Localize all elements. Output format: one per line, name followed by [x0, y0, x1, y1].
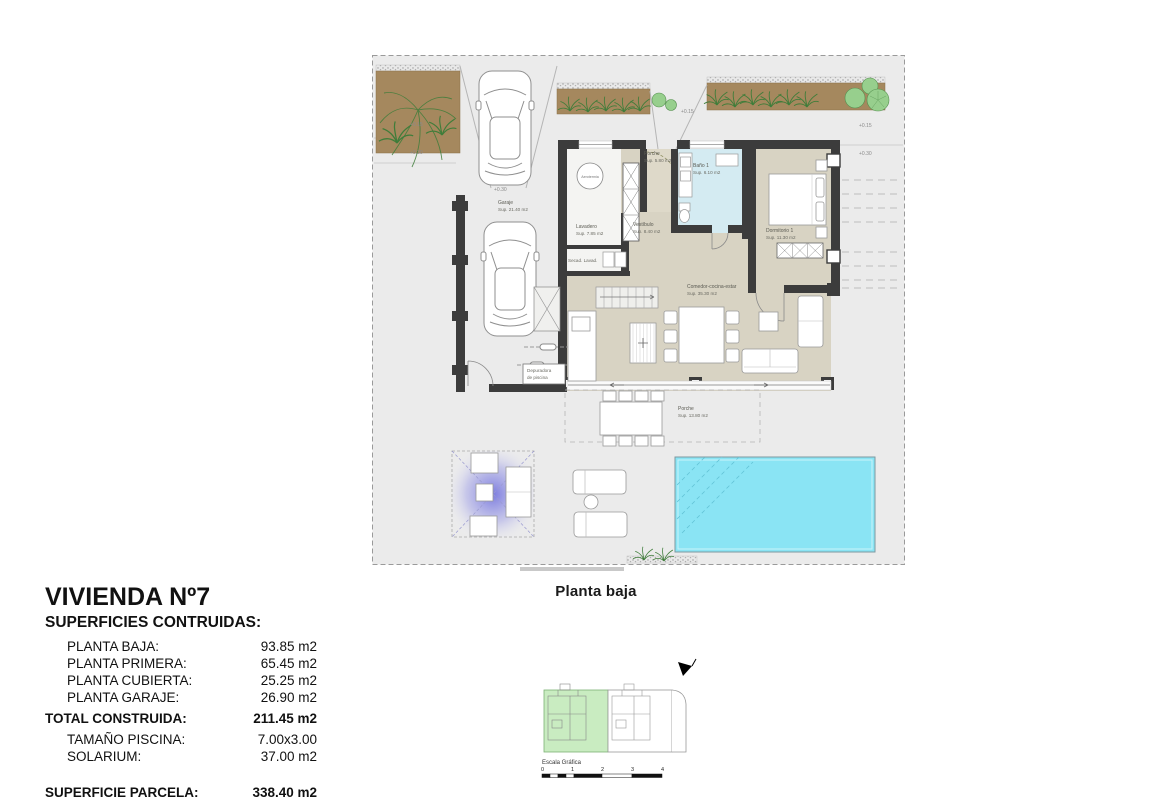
room-comedor-name: Comedor-cocina-estar: [687, 284, 737, 290]
scale-tick-0: 0: [541, 767, 544, 773]
pool-pump-label-2: de piscina: [527, 375, 548, 380]
plan-caption: Planta baja: [300, 583, 892, 600]
surface-row: TAMAÑO PISCINA: 7.00x3.00: [45, 731, 317, 748]
aerotermia-label: Aerotermia: [581, 175, 599, 179]
level-right-upper: +0.15: [859, 123, 872, 129]
surfaces-subtitle: SUPERFICIES CONTRUIDAS:: [45, 614, 317, 631]
surface-value: 37.00 m2: [261, 748, 317, 765]
scale-tick-1: 1: [571, 767, 574, 773]
surface-row: PLANTA CUBIERTA: 25.25 m2: [45, 672, 317, 689]
surface-label: SUPERFICIE PARCELA:: [45, 784, 199, 801]
outdoor-dining: [600, 391, 664, 446]
aerotermia-unit: Aerotermia: [577, 163, 603, 189]
pool-pump-label-1: Depuradora: [527, 368, 552, 373]
glass-wall: [567, 381, 831, 390]
surface-row: PLANTA BAJA: 93.85 m2: [45, 638, 317, 655]
stairs-garage: [534, 287, 560, 331]
room-lavadero-name: Lavadero: [576, 224, 597, 230]
surface-value: 93.85 m2: [261, 638, 317, 655]
site-plots: [544, 690, 686, 752]
room-porche-entrada-name: Porche: [644, 151, 660, 157]
surface-value: 25.25 m2: [261, 672, 317, 689]
surface-label: PLANTA GARAJE:: [67, 689, 179, 706]
room-porche-terraza-name: Porche: [678, 406, 694, 412]
room-dormitorio1-area: Sup. 11.30 m2: [766, 235, 796, 240]
surface-label: PLANTA CUBIERTA:: [67, 672, 192, 689]
level-right-lower: +0.30: [859, 151, 872, 157]
room-vestibulo-name: Vestíbulo: [633, 222, 654, 228]
room-porche-entrada-area: Sup. 5.80 m2: [644, 158, 672, 163]
surface-value: 211.45 m2: [253, 710, 317, 727]
surface-label: TAMAÑO PISCINA:: [67, 731, 185, 748]
north-arrow-icon: [678, 659, 696, 676]
stairs-main: [596, 287, 658, 308]
site-key-plan: Escala Gráfica 0 1 2 3 4: [536, 656, 706, 780]
surface-label: SOLARIUM:: [67, 748, 141, 765]
room-bano1-name: Baño 1: [693, 163, 709, 169]
swimming-pool: [675, 457, 875, 552]
surface-value: 65.45 m2: [261, 655, 317, 672]
scale-tick-4: 4: [661, 767, 664, 773]
room-vestibulo-area: Sup. 8.40 m2: [633, 229, 661, 234]
surface-label: PLANTA PRIMERA:: [67, 655, 187, 672]
room-bano1-area: Sup. 6.10 m2: [693, 170, 721, 175]
drawing-sheet: Depuradora de piscina: [0, 0, 1170, 785]
surface-row: SOLARIUM: 37.00 m2: [45, 748, 317, 765]
title-block: VIVIENDA Nº7 SUPERFICIES CONTRUIDAS: PLA…: [45, 584, 317, 801]
level-garage: +0.30: [494, 187, 507, 193]
room-garaje-name: Garaje: [498, 200, 513, 206]
scale-label: Escala Gráfica: [542, 760, 582, 766]
pergola-lounge: [452, 451, 534, 537]
level-left-lower: +0.30: [410, 150, 423, 156]
floor-plan-drawing: Depuradora de piscina: [372, 55, 905, 565]
scale-tick-2: 2: [601, 767, 604, 773]
pool-pump-box: Depuradora de piscina: [523, 364, 565, 384]
dwelling-title: VIVIENDA Nº7: [45, 584, 317, 610]
car-driveway: [476, 71, 534, 185]
room-comedor-area: Sup. 35.30 m2: [687, 291, 717, 296]
surface-row: PLANTA GARAJE: 26.90 m2: [45, 689, 317, 706]
room-secadero-name: Secad. Lavad.: [568, 258, 597, 263]
room-lavadero-area: Sup. 7.85 m2: [576, 231, 604, 236]
wardrobe: [777, 243, 823, 258]
room-garaje-area: Sup. 21.40 m2: [498, 207, 528, 212]
surface-value: 338.40 m2: [252, 784, 317, 801]
surface-row-parcela: SUPERFICIE PARCELA: 338.40 m2: [45, 784, 317, 801]
surface-label: PLANTA BAJA:: [67, 638, 159, 655]
surface-row-total: TOTAL CONSTRUIDA: 211.45 m2: [45, 710, 317, 727]
dining-set: [664, 307, 739, 363]
surface-row: PLANTA PRIMERA: 65.45 m2: [45, 655, 317, 672]
car-garage: [481, 222, 539, 336]
surface-value: 26.90 m2: [261, 689, 317, 706]
fence-line: [520, 567, 624, 571]
surface-label: TOTAL CONSTRUIDA:: [45, 710, 187, 727]
level-left-upper: +0.15: [410, 122, 423, 128]
surface-value: 7.00x3.00: [258, 731, 317, 748]
room-porche-terraza-area: Sup. 13.80 m2: [678, 413, 708, 418]
room-dormitorio1-name: Dormitorio 1: [766, 228, 793, 234]
scale-tick-3: 3: [631, 767, 634, 773]
level-entry: +0.15: [681, 109, 694, 115]
scale-bar: [542, 774, 662, 778]
